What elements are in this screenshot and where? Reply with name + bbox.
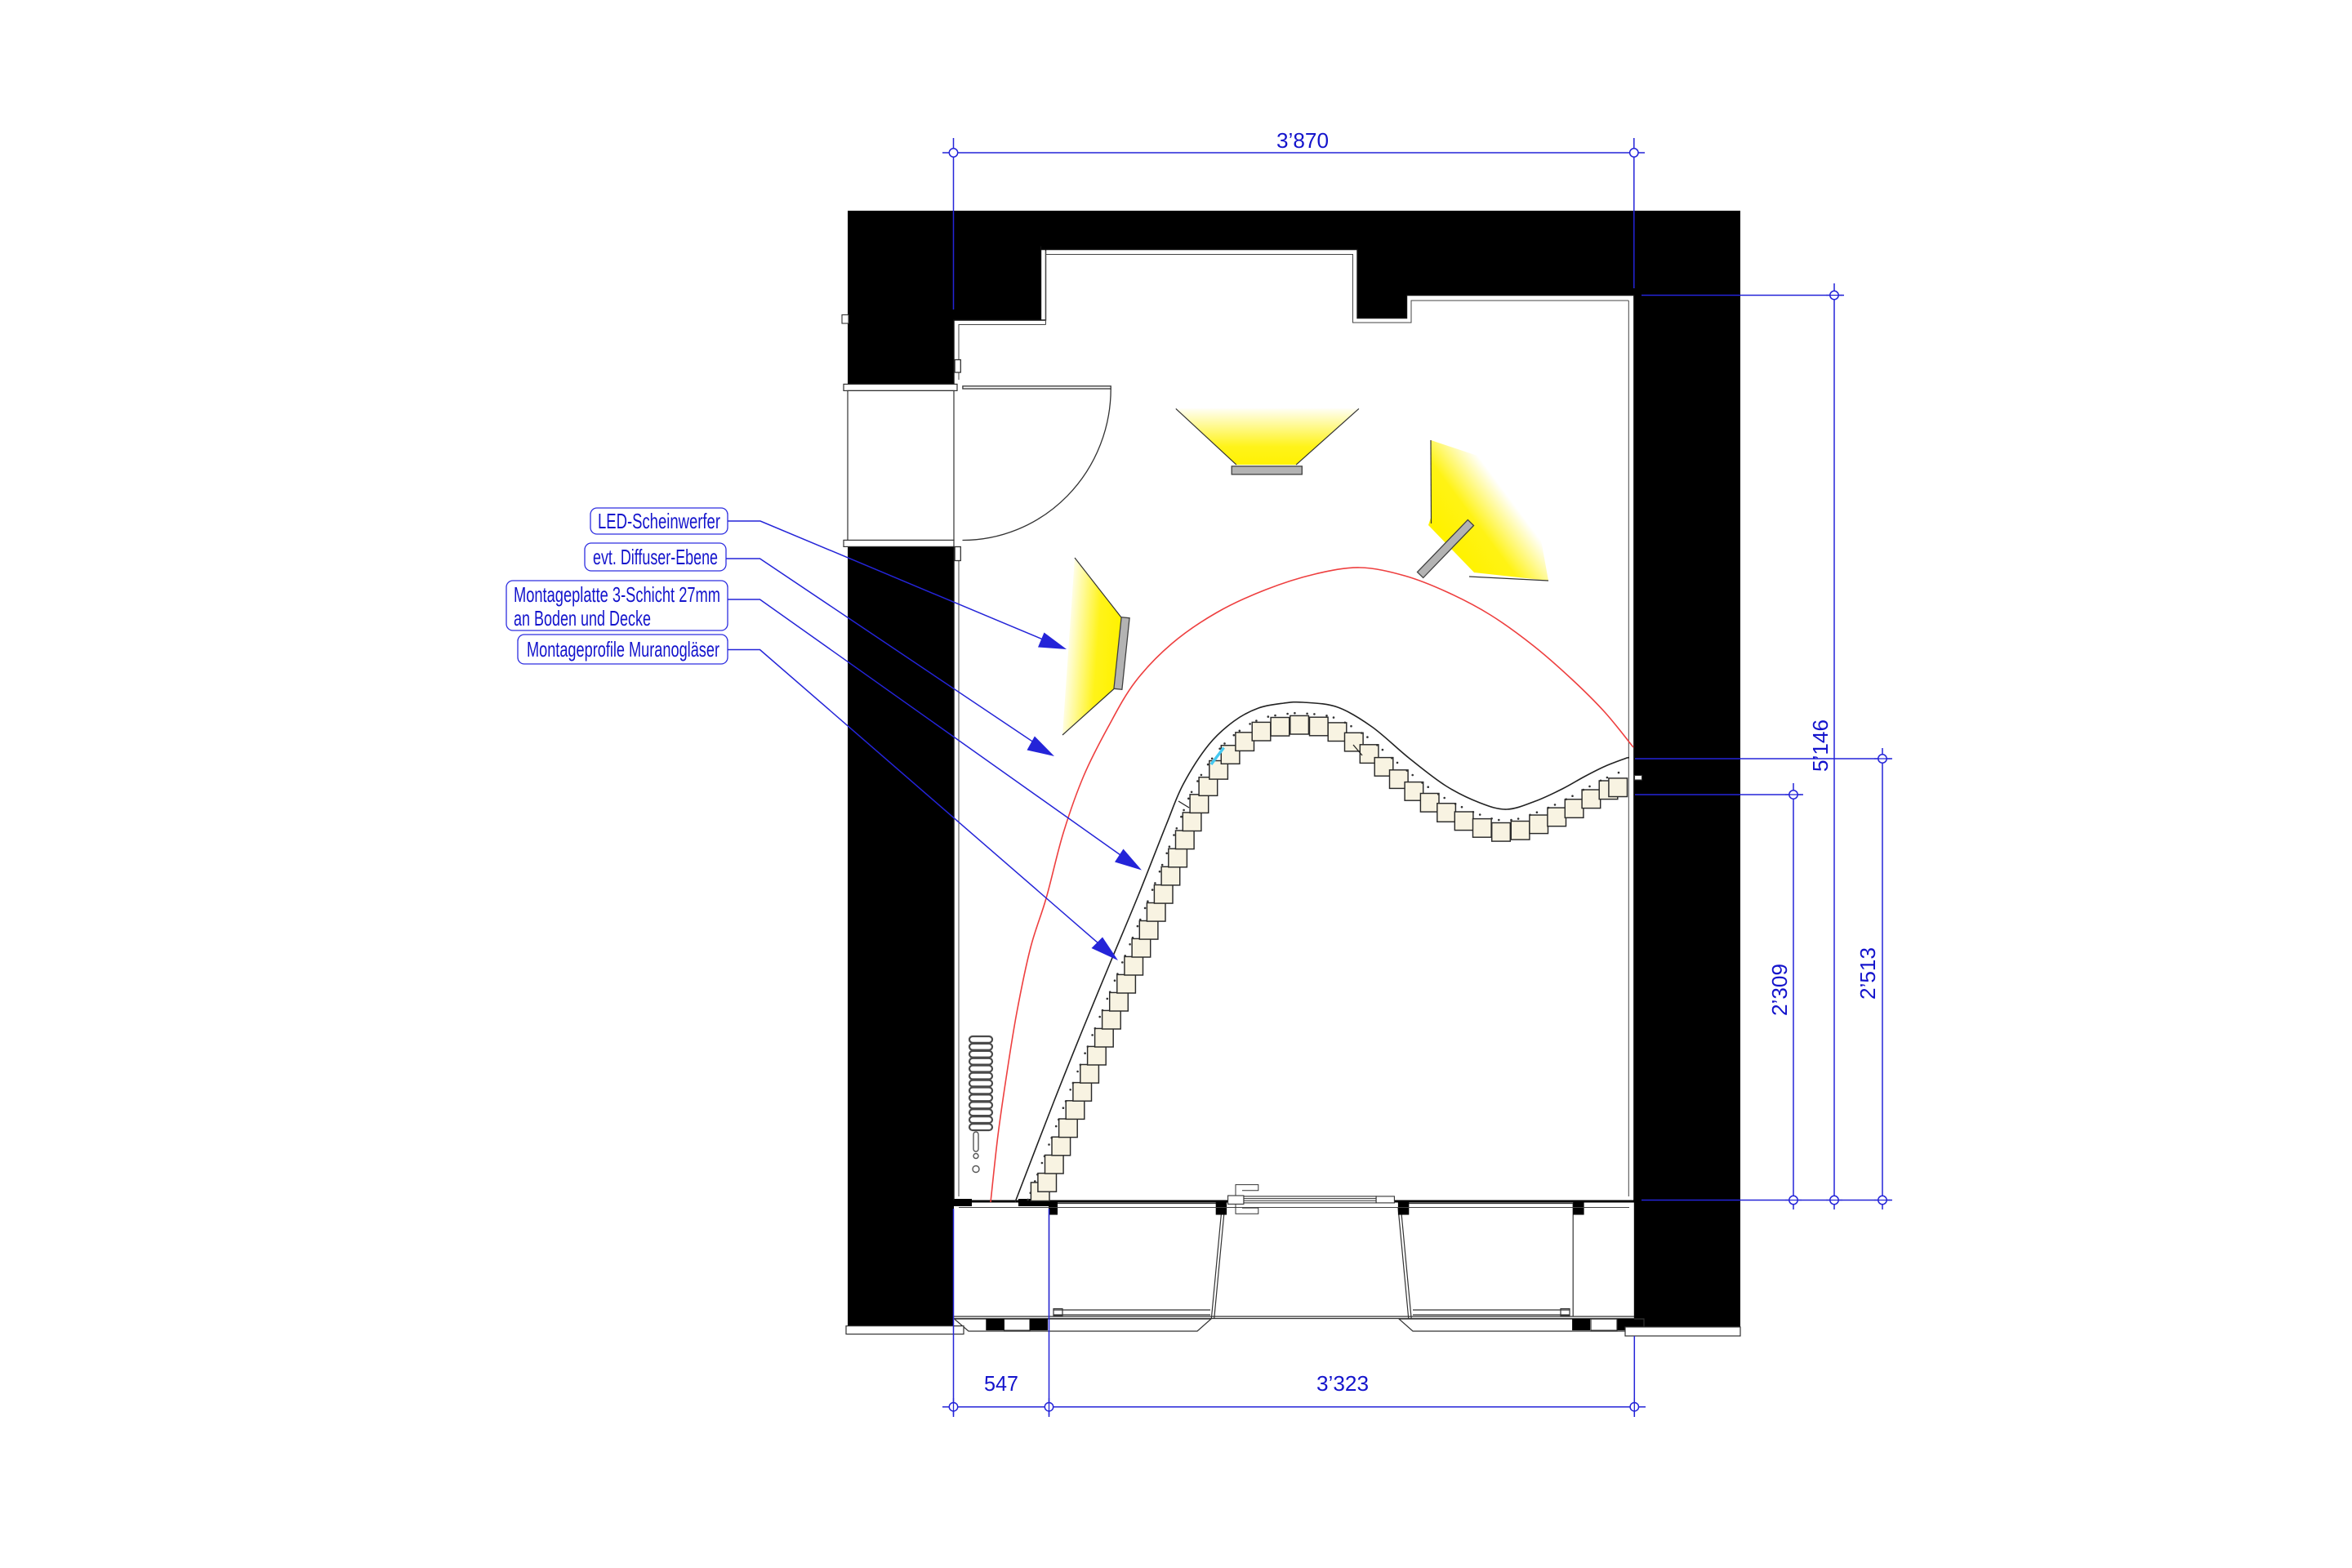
svg-text:evt. Diffuser-Ebene: evt. Diffuser-Ebene	[593, 545, 718, 569]
svg-text:2’309: 2’309	[1767, 964, 1792, 1016]
svg-text:Montageprofile Muranogläser: Montageprofile Muranogläser	[527, 637, 719, 661]
svg-text:5’146: 5’146	[1808, 719, 1833, 772]
svg-text:LED-Scheinwerfer: LED-Scheinwerfer	[598, 509, 720, 533]
svg-text:Montageplatte 3-Schicht 27mm: Montageplatte 3-Schicht 27mm	[514, 582, 720, 607]
svg-text:547: 547	[984, 1371, 1018, 1396]
svg-text:2’513: 2’513	[1855, 947, 1880, 1000]
svg-text:3’323: 3’323	[1316, 1371, 1369, 1396]
svg-text:an Boden und Decke: an Boden und Decke	[514, 606, 651, 630]
svg-text:3’870: 3’870	[1276, 128, 1329, 153]
